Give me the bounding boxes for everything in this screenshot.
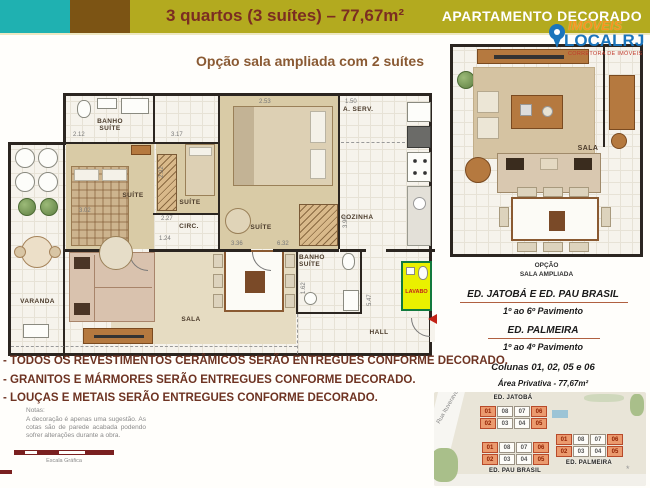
wall (153, 96, 155, 142)
bed-suite-left (71, 166, 129, 246)
room-label-suite-top: SUÍTE (226, 224, 296, 231)
pool (552, 410, 568, 418)
unit-tile: 08 (497, 406, 513, 417)
room-label-cozinha: COZINHA (341, 214, 403, 221)
wall (296, 249, 298, 314)
side-table (465, 157, 491, 183)
option-floor-plan: SALA (450, 44, 643, 257)
option-dash-line (297, 314, 298, 359)
unit-tile: 01 (480, 406, 496, 417)
pouf (477, 91, 499, 113)
room-label-banho-suite-top-1: BANHO (97, 118, 123, 125)
poster: 3 quartos (3 suítes) – 77,67m² APARTAMEN… (0, 0, 650, 488)
dining-chair (543, 242, 563, 252)
wall (360, 249, 362, 314)
plant (18, 198, 36, 216)
option-caption-1: OPÇÃO (450, 261, 643, 270)
green-area (630, 394, 644, 416)
option-caption-2: SALA AMPLIADA (450, 270, 643, 279)
road (434, 474, 646, 486)
scale-label: Escala Gráfica (14, 458, 114, 464)
sink-vanity (97, 98, 117, 109)
varanda-chair (49, 246, 61, 258)
building-palmeira: 01 08 07 06 02 03 04 05 (556, 434, 623, 457)
unit-tile: 07 (590, 434, 606, 445)
info-buildings-1: ED. JATOBÁ E ED. PAU BRASIL (438, 289, 648, 300)
info-floors-1: 1º ao 6º Pavimento (438, 306, 648, 316)
room-label-suite-mid: SUÍTE (161, 199, 219, 206)
entrance-arrow-icon (428, 314, 437, 324)
unit-tile: 06 (533, 442, 549, 453)
room-label-sala: SALA (156, 316, 226, 323)
wall (340, 249, 366, 252)
main-floor-plan: VARANDA BANHO SUÍTE SUÍTE SUÍTE (8, 93, 432, 356)
dimension: 1.24 (159, 236, 171, 242)
brand-logo: IMÓVEIS LOCALRJ CORRETORA DE IMÓVEIS (542, 2, 650, 66)
tv-console (83, 328, 153, 344)
unit-tile: 04 (516, 454, 532, 465)
unit-tile: 05 (607, 446, 623, 457)
lattice-panel (38, 172, 58, 192)
kitchen-counter (407, 186, 431, 246)
dimension: 3.02 (79, 208, 91, 214)
logo-brand-bottom: LOCALRJ (564, 31, 644, 51)
unit-tile: 05 (533, 454, 549, 465)
unit-tile: 01 (482, 442, 498, 453)
scale-bar (14, 450, 114, 455)
unit-tile: 03 (497, 418, 513, 429)
dimension: 2.53 (259, 99, 271, 105)
room-label-aserv: A. SERV. (343, 106, 393, 113)
coffee-table (511, 95, 563, 129)
building-label-jatoba: ED. JATOBÁ (472, 395, 554, 401)
underline (460, 302, 628, 303)
option-dash-line (11, 346, 297, 347)
wall (273, 249, 339, 252)
dimension: 2.92 (159, 166, 165, 178)
building-label-palmeira: ED. PALMEIRA (548, 460, 630, 466)
header-brown-block (70, 0, 130, 33)
dining-chair (213, 254, 223, 268)
lattice-panel (15, 172, 35, 192)
disclaimer-1: - TODOS OS REVESTIMENTOS CERÂMICOS SERÃO… (3, 355, 508, 367)
header-teal-block (0, 0, 70, 33)
dresser (131, 145, 151, 155)
building-label-pau-brasil: ED. PAU BRASIL (474, 468, 556, 474)
unit-tile: 05 (531, 418, 547, 429)
room-lavabo: LAVABO (401, 261, 432, 311)
dining-table (511, 197, 599, 241)
dining-chair (285, 294, 295, 308)
unit-tile: 02 (556, 446, 572, 457)
info-building-2: ED. PALMEIRA (438, 325, 648, 336)
info-floors-2: 1º ao 4º Pavimento (438, 342, 648, 352)
site-map: ED. JATOBÁ 01 08 07 06 02 03 04 05 01 08… (434, 392, 646, 486)
dining-chair (569, 242, 589, 252)
unit-tile: 04 (590, 446, 606, 457)
unit-tile: 01 (556, 434, 572, 445)
dining-chair (499, 207, 509, 227)
dining-chair (213, 294, 223, 308)
disclaimer-2: - GRANITOS E MÁRMORES SERÃO ENTREGUES CO… (3, 374, 416, 386)
room-label-suite-left: SUÍTE (111, 192, 155, 199)
underline (488, 338, 600, 339)
unit-tile: 06 (531, 406, 547, 417)
dining-chair (569, 187, 589, 197)
unit-tile: 02 (482, 454, 498, 465)
unit-tile: 03 (573, 446, 589, 457)
room-label-banho-suite-top-2: SUÍTE (99, 125, 120, 132)
washer (407, 126, 431, 148)
compass-icon: * (626, 464, 630, 474)
wall (63, 96, 65, 359)
subtitle: Opção sala ampliada com 2 suítes (165, 53, 455, 69)
wall (338, 96, 340, 249)
wall (218, 96, 220, 249)
dimension: 3.17 (171, 132, 183, 138)
page-title: 3 quartos (3 suítes) – 77,67m² (130, 6, 440, 26)
notes-body: A decoração é apenas uma sugestão. As co… (26, 416, 146, 440)
info-area: Área Privativa - 77,67m² (438, 379, 648, 388)
notes-title: Notas: (26, 407, 45, 414)
pouf (477, 117, 499, 139)
dimension: 3.90 (343, 216, 349, 228)
dining-chair (601, 207, 611, 227)
toilet (77, 100, 91, 118)
unit-tile: 02 (480, 418, 496, 429)
dimension: 2.27 (161, 216, 173, 222)
unit-tile: 06 (607, 434, 623, 445)
disclaimer-3: - LOUÇAS E METAIS SERÃO ENTREGUES CONFOR… (3, 392, 378, 404)
varanda-chair (14, 246, 26, 258)
dining-chair (517, 187, 537, 197)
sideboard (609, 75, 635, 130)
room-label-sala-option: SALA (561, 145, 615, 152)
room-label-banho-mid-1: BANHO (299, 254, 325, 261)
room-label-circ: CIRC. (161, 223, 217, 230)
dining-chair (517, 242, 537, 252)
unit-tile: 03 (499, 454, 515, 465)
lattice-panel (38, 148, 58, 168)
dimension: 1.50 (345, 99, 357, 105)
room-label-varanda: VARANDA (11, 298, 64, 305)
unit-tile: 08 (573, 434, 589, 445)
plant (40, 198, 58, 216)
wall (296, 312, 362, 314)
wall (149, 249, 251, 252)
bathtub (121, 98, 149, 114)
wall (153, 213, 220, 215)
room-label-lavabo: LAVABO (403, 289, 430, 295)
room-label-banho-mid-2: SUÍTE (299, 261, 320, 268)
logo-tagline: CORRETORA DE IMÓVEIS (568, 51, 642, 57)
dimension: 6.32 (277, 241, 289, 247)
dimension: 5.47 (367, 294, 373, 306)
wall (386, 249, 435, 252)
bed-suite-mid (185, 144, 215, 196)
dining-chair (213, 274, 223, 288)
lattice-panel (15, 148, 35, 168)
unit-tile: 07 (516, 442, 532, 453)
green-area (584, 394, 624, 402)
building-jatoba: 01 08 07 06 02 03 04 05 (480, 406, 547, 429)
red-mark (0, 470, 12, 474)
room-label-hall: HALL (347, 329, 411, 336)
building-pau-brasil: 01 08 07 06 02 03 04 05 (482, 442, 549, 465)
green-area (434, 448, 458, 482)
round-chair (99, 236, 133, 270)
shower (343, 290, 359, 311)
dimension: 3.36 (231, 241, 243, 247)
dimension: 1.62 (301, 282, 307, 294)
bed-suite-top (233, 106, 333, 186)
dining-chair (543, 187, 563, 197)
dimension: 2.12 (73, 132, 85, 138)
dining-chair (285, 274, 295, 288)
unit-tile: 07 (514, 406, 530, 417)
unit-tile: 08 (499, 442, 515, 453)
exterior-notch (8, 93, 66, 145)
toilet (342, 253, 355, 270)
unit-tile: 04 (514, 418, 530, 429)
dining-chair (285, 254, 295, 268)
wall (63, 142, 220, 144)
closet (299, 204, 338, 246)
service-divider (341, 142, 405, 143)
laundry-sink (407, 102, 431, 122)
grill-counter (23, 324, 49, 338)
stove (407, 152, 431, 182)
